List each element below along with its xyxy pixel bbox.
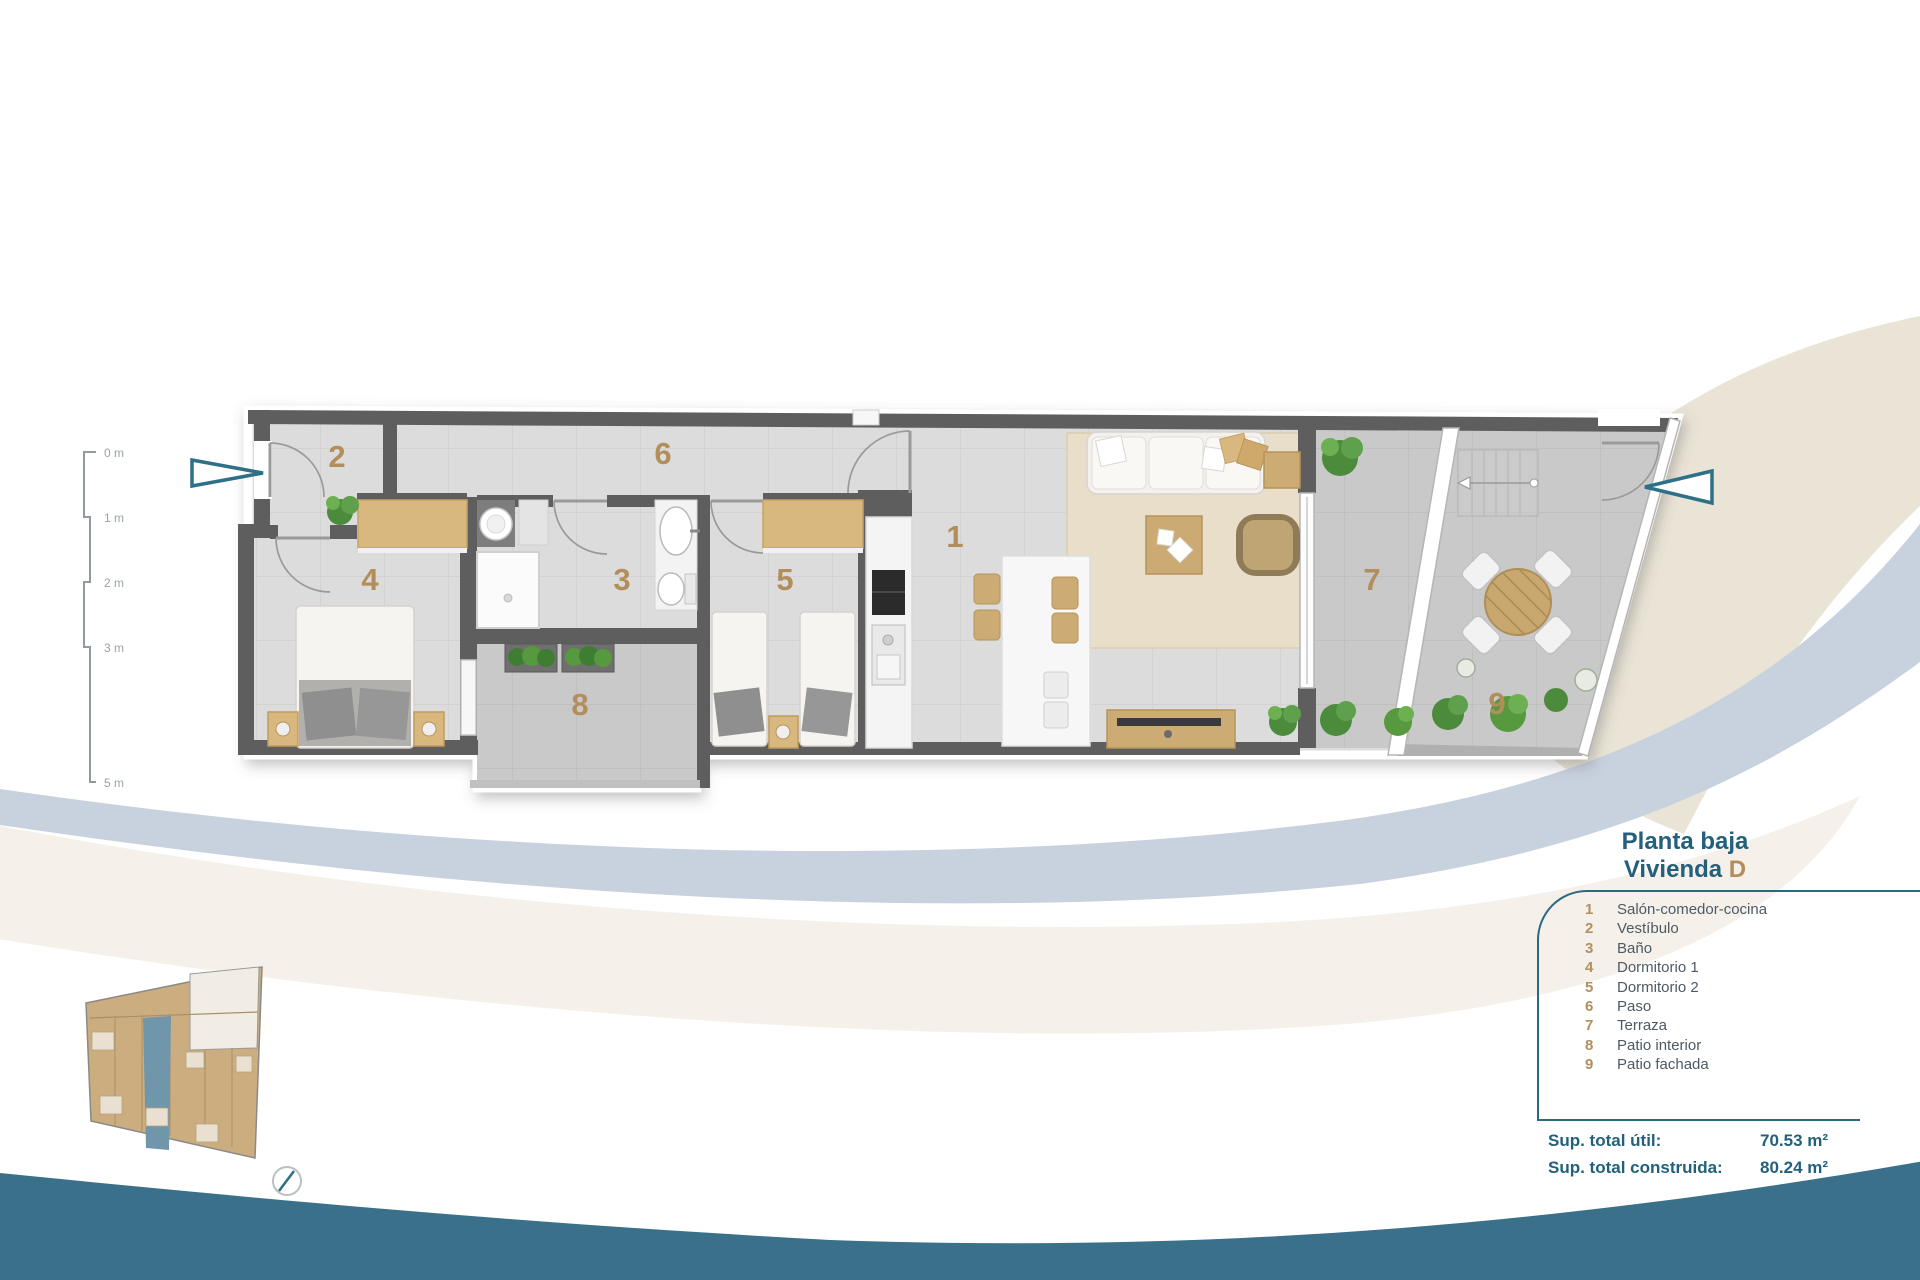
scale-tick-2m: 2 m (104, 576, 124, 590)
wall-left-mid (254, 497, 270, 528)
wall-left-lower (238, 536, 254, 754)
wall-left-upper (254, 410, 270, 443)
legend-item-label: Dormitorio 2 (1617, 979, 1699, 996)
total-built-label: Sup. total construida: (1548, 1158, 1758, 1178)
scale-tick-0m: 0 m (104, 446, 124, 460)
room-label-9: 9 (1488, 686, 1505, 721)
room-label-5: 5 (776, 562, 793, 597)
round-table (1485, 569, 1551, 635)
wall-room4-top (330, 525, 357, 539)
white-chair-1 (1044, 672, 1068, 698)
nightstand-room5-knob (776, 725, 790, 739)
legend-item-label: Paso (1617, 998, 1651, 1015)
nightstand-left-knob (276, 722, 290, 736)
legend-item-label: Dormitorio 1 (1617, 959, 1699, 976)
round-basin-bowl (487, 515, 505, 533)
sofa-pillow-white-1 (1096, 436, 1127, 467)
room-label-1: 1 (946, 519, 963, 554)
legend-item-num: 5 (1585, 979, 1617, 996)
wall-vestibule-corridor (383, 424, 397, 500)
legend-item: 7Terraza (1585, 1017, 1885, 1036)
pillow-left (302, 688, 357, 741)
tv-console (1107, 710, 1235, 748)
legend-item-num: 3 (1585, 940, 1617, 957)
legend-item: 4Dormitorio 1 (1585, 959, 1885, 978)
legend: 1Salón-comedor-cocina 2Vestíbulo 3Baño 4… (1585, 901, 1885, 1076)
legend-item: 9Patio fachada (1585, 1056, 1885, 1075)
legend-item-label: Salón-comedor-cocina (1617, 901, 1767, 918)
legend-item-num: 1 (1585, 901, 1617, 918)
pillow-bed-right (801, 687, 852, 736)
legend-item: 6Paso (1585, 998, 1885, 1017)
armchair-seat (1243, 520, 1293, 570)
patio9-door-opening (1598, 409, 1660, 426)
legend-item: 3Baño (1585, 940, 1885, 959)
room-label-3: 3 (613, 562, 630, 597)
legend-item-num: 6 (1585, 998, 1617, 1015)
scale-bar-line (84, 452, 96, 782)
compass-icon (273, 1167, 301, 1195)
legend-item-num: 8 (1585, 1037, 1617, 1054)
unit-letter: D (1729, 856, 1746, 883)
floor-plan: 1 2 3 4 5 6 7 8 9 (192, 409, 1712, 788)
scale-tick-3m: 3 m (104, 641, 124, 655)
legend-item-label: Patio interior (1617, 1037, 1701, 1054)
legend-item: 8Patio interior (1585, 1037, 1885, 1056)
nightstand-right-knob (422, 722, 436, 736)
legend-item-label: Vestíbulo (1617, 920, 1679, 937)
kitchen (866, 517, 912, 748)
plan-title: Planta baja Vivienda D (1560, 828, 1810, 884)
wardrobe5-rail (763, 548, 863, 553)
key-plan (86, 967, 301, 1195)
legend-item-label: Patio fachada (1617, 1056, 1709, 1073)
room-label-2: 2 (328, 439, 345, 474)
glass-sliding-door (1300, 493, 1314, 688)
key-plan-highlighted-unit (143, 1016, 171, 1150)
island-stool-1 (1052, 577, 1078, 609)
total-built-value: 80.24 m² (1760, 1158, 1870, 1178)
legend-item-num: 7 (1585, 1017, 1617, 1034)
legend-item-label: Terraza (1617, 1017, 1667, 1034)
total-util-label: Sup. total útil: (1548, 1131, 1758, 1151)
bush-outline-1 (1575, 669, 1597, 691)
wardrobe4-rail (358, 548, 467, 553)
room-label-7: 7 (1363, 562, 1380, 597)
legend-item: 5Dormitorio 2 (1585, 979, 1885, 998)
wall-bath-patio8 (460, 628, 710, 644)
legend-item: 2Vestíbulo (1585, 920, 1885, 939)
tv-screen (1117, 718, 1221, 726)
patio8-window (461, 660, 476, 735)
key-plan-common-area (190, 967, 259, 1050)
wall-terrace-lower (1298, 688, 1316, 748)
side-table (1264, 452, 1300, 488)
coffee-table-item-1 (1157, 529, 1174, 546)
dining-chair-1 (974, 574, 1000, 604)
wall-room5-left (697, 497, 710, 788)
sink-faucet (883, 635, 893, 645)
brochure-page: { "title": { "line1": "Planta baja", "li… (0, 0, 1920, 1280)
legend-item-num: 4 (1585, 959, 1617, 976)
unit-title-label: Vivienda (1624, 856, 1722, 883)
unit-title: Vivienda D (1560, 856, 1810, 884)
patio8-outer-wall (470, 780, 700, 788)
tv-console-knob (1164, 730, 1172, 738)
sink-basin (877, 655, 900, 679)
legend-item-label: Baño (1617, 940, 1652, 957)
toilet-bowl (658, 573, 684, 605)
wall-left-step (238, 524, 270, 538)
shower-tray (477, 552, 539, 628)
wardrobe-room5 (763, 500, 863, 548)
scale-bar: 0 m 1 m 2 m 3 m 5 m (84, 446, 124, 790)
legend-item: 1Salón-comedor-cocina (1585, 901, 1885, 920)
scale-tick-1m: 1 m (104, 511, 124, 525)
scale-tick-5m: 5 m (104, 776, 124, 790)
dining-chair-2 (974, 610, 1000, 640)
window-top (853, 410, 879, 425)
bush-outline-2 (1457, 659, 1475, 677)
page-title: Planta baja (1560, 828, 1810, 856)
legend-item-num: 2 (1585, 920, 1617, 937)
white-chair-2 (1044, 702, 1068, 728)
room-label-6: 6 (654, 436, 671, 471)
total-util-value: 70.53 m² (1760, 1131, 1870, 1151)
sofa-cushion-2 (1149, 437, 1203, 489)
shower-drain (504, 594, 512, 602)
stairs (1458, 450, 1538, 516)
legend-item-num: 9 (1585, 1056, 1617, 1073)
wardrobe-room4 (358, 500, 467, 548)
totals-separator (1537, 1119, 1860, 1121)
room-label-4: 4 (361, 562, 379, 597)
toilet-tank (685, 574, 696, 604)
room-label-8: 8 (571, 687, 588, 722)
pillow-bed-left (713, 687, 764, 736)
bath-tub-basin (660, 507, 692, 555)
island-stool-2 (1052, 613, 1078, 643)
bath-shelf (519, 500, 548, 545)
stairs-start-dot (1530, 479, 1538, 487)
pillow-right (356, 688, 410, 740)
